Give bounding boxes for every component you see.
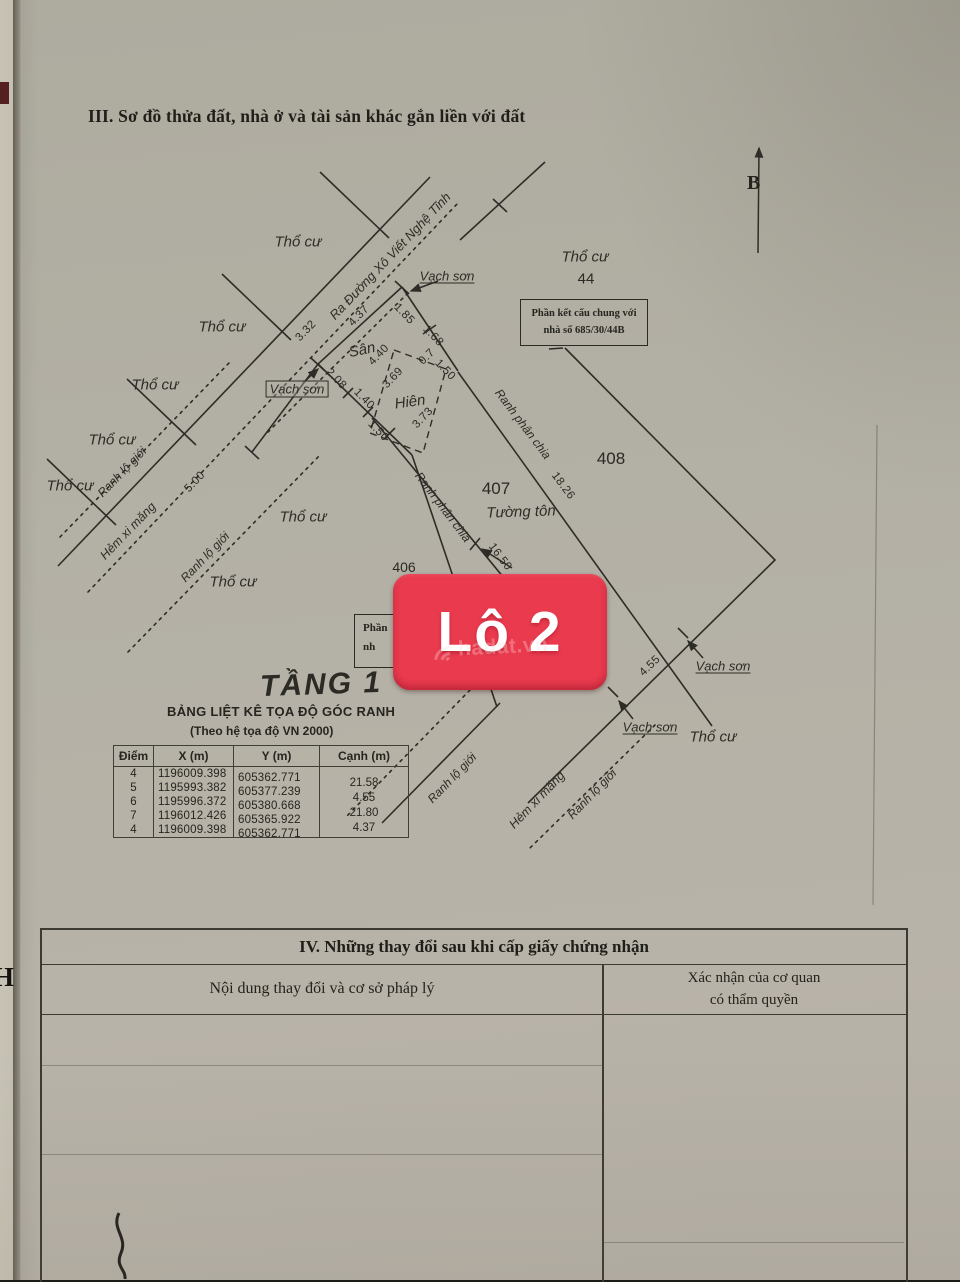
tho-cu-label: Thổ cư	[279, 509, 326, 526]
paper-tear-mark	[117, 1213, 125, 1279]
edge-length: 4.55	[353, 792, 375, 804]
shared-structure-note: Phần kết cấu chung với nhà số 685/30/44B	[520, 299, 648, 346]
tho-cu-label: Thổ cư	[689, 729, 736, 746]
coord-table-header-row: Điểm X (m) Y (m) Cạnh (m)	[114, 746, 409, 767]
adjacent-page-edge	[0, 0, 13, 1280]
metal-wall-label: Tường tôn	[486, 502, 556, 521]
cell-diem: 4	[114, 767, 154, 782]
scanned-land-certificate-photo: { "colors": {"badge_red": "#e93a4e", "pa…	[0, 0, 960, 1280]
cell-diem: 7	[114, 809, 154, 823]
lot-badge: Lô 2 hadat.vn	[393, 574, 607, 690]
table-row: 4 1196009.398 605362.771 21.58 4.55 21.8…	[114, 767, 409, 782]
cell-x: 1196009.398	[154, 767, 234, 782]
plot-number-407: 407	[482, 479, 510, 499]
cell-diem: 6	[114, 795, 154, 809]
alley-northwest-edge-line	[58, 177, 430, 566]
tho-cu-label: Thổ cư	[88, 432, 135, 449]
adjacent-page-letter: H	[0, 962, 14, 993]
top-right-boundary-line	[460, 162, 545, 240]
lot-boundary-ticks	[47, 172, 389, 525]
lower-left-setback-dotted-line-2	[128, 455, 320, 652]
col-header-x: X (m)	[154, 746, 234, 767]
tho-cu-label: Thổ cư	[561, 249, 608, 266]
paint-line-label: Vạch sơn	[623, 720, 678, 735]
tho-cu-label: Thổ cư	[209, 574, 256, 591]
plot-number-406: 406	[392, 559, 415, 575]
paint-line-label: Vạch sơn	[266, 381, 329, 398]
paint-line-label: Vạch sơn	[420, 269, 475, 284]
north-label: B	[747, 172, 760, 195]
paint-line-arrow-4	[619, 701, 633, 719]
edge-length: 4.37	[353, 822, 375, 834]
red-edge-mark	[0, 82, 9, 104]
col-header-canh: Cạnh (m)	[320, 746, 409, 767]
coord-table-title: BẢNG LIỆT KÊ TỌA ĐỘ GÓC RANH	[167, 704, 395, 719]
note-line-2: nhà số 685/30/44B	[521, 323, 647, 340]
edge-length: 21.80	[350, 807, 379, 819]
cell-diem: 5	[114, 781, 154, 795]
floor-label: TẦNG 1	[259, 666, 382, 704]
page-fold-shadow	[13, 0, 21, 1280]
note-line-1: Phần kết cấu chung với	[521, 306, 647, 323]
cell-canh-stack: 21.58 4.55 21.80 4.37	[320, 767, 409, 838]
tho-cu-label: Thổ cư	[46, 478, 93, 495]
cell-x: 1195993.382	[154, 781, 234, 795]
paint-line-label: Vạch sơn	[696, 659, 751, 674]
cell-x: 1196012.426	[154, 809, 234, 823]
col-header-diem: Điểm	[114, 746, 154, 767]
north-arrow	[758, 148, 759, 253]
tho-cu-label: Thổ cư	[198, 319, 245, 336]
cell-diem: 4	[114, 823, 154, 838]
plot-number-44: 44	[578, 271, 595, 288]
note-box-leader-dash	[549, 348, 563, 349]
cell-x: 1196009.398	[154, 823, 234, 838]
section3-title: III. Sơ đồ thửa đất, nhà ở và tài sản kh…	[88, 106, 525, 127]
col-header-y: Y (m)	[234, 746, 320, 767]
cell-y: 605362.771	[234, 767, 320, 782]
paint-line-arrow-3	[688, 641, 703, 658]
tho-cu-label: Thổ cư	[274, 234, 321, 251]
coord-table-subtitle: (Theo hệ tọa độ VN 2000)	[190, 724, 333, 738]
coord-table: Điểm X (m) Y (m) Cạnh (m) 4 1196009.398 …	[113, 745, 409, 838]
tho-cu-label: Thổ cư	[131, 377, 178, 394]
plot-number-408: 408	[597, 449, 625, 469]
cell-x: 1195996.372	[154, 795, 234, 809]
watermark-text: hadat.vn	[457, 633, 548, 662]
paper-crease-line	[873, 425, 877, 905]
edge-length: 21.58	[350, 777, 379, 789]
